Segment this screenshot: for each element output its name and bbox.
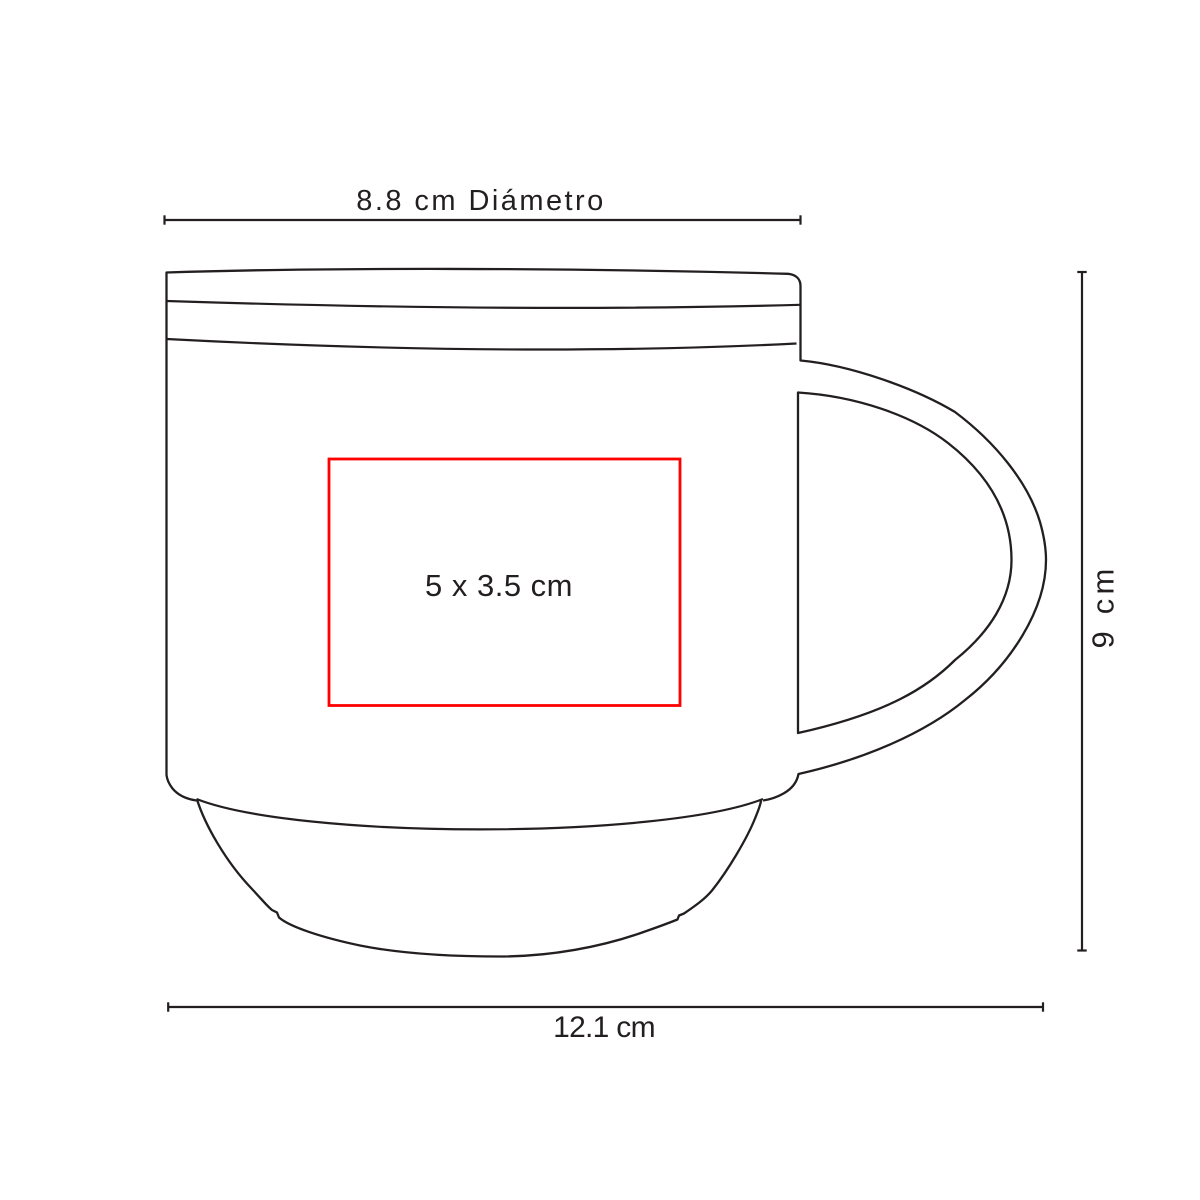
svg-text:9 cm: 9 cm xyxy=(1086,565,1121,649)
svg-text:8.8 cm Diámetro: 8.8 cm Diámetro xyxy=(356,185,605,217)
svg-text:12.1 cm: 12.1 cm xyxy=(553,1011,655,1044)
svg-text:5 x 3.5 cm: 5 x 3.5 cm xyxy=(425,568,573,603)
